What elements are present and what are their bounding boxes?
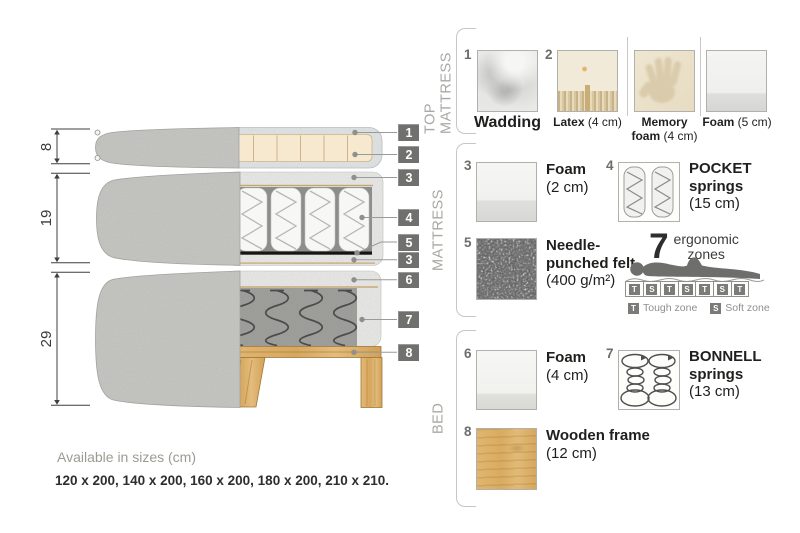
memory-foam-thumbnail bbox=[634, 50, 695, 112]
zone-box: S bbox=[713, 281, 732, 297]
bonnell-springs-icon bbox=[619, 351, 679, 409]
bed-construction-infographic: 8 19 29 1 2 3 4 5 3 6 7 8 TOP MATTRESS 1… bbox=[0, 0, 800, 533]
tough-zone-key: T Tough zone bbox=[628, 302, 697, 314]
felt-texture bbox=[477, 239, 536, 299]
latex-thumbnail bbox=[557, 50, 618, 112]
divider bbox=[700, 37, 701, 116]
callout-8: 8 bbox=[398, 344, 419, 361]
legend-num-5: 5 bbox=[464, 235, 472, 250]
pocket-springs-thumbnail bbox=[618, 162, 680, 222]
section-title-bed: BED bbox=[430, 330, 447, 507]
pocket-springs-icon bbox=[619, 163, 679, 221]
section-title-mattress: MATTRESS bbox=[430, 143, 447, 317]
legend-num-4: 4 bbox=[606, 158, 614, 173]
foam4-thumbnail bbox=[476, 350, 537, 410]
wood-caption: Wooden frame(12 cm) bbox=[546, 427, 716, 462]
legend-num-1: 1 bbox=[464, 47, 472, 62]
bonnell-springs-thumbnail bbox=[618, 350, 680, 410]
zone-box: S bbox=[678, 281, 697, 297]
foam2-thumbnail bbox=[476, 162, 537, 222]
callout-4: 4 bbox=[398, 209, 419, 226]
foam5-caption: Foam (5 cm) bbox=[697, 116, 777, 130]
legend-num-2: 2 bbox=[545, 47, 553, 62]
dimension-top-mattress: 8 bbox=[35, 136, 57, 158]
legend-num-7: 7 bbox=[606, 346, 614, 361]
foam5-thumbnail bbox=[706, 50, 767, 112]
sizes-heading: Available in sizes (cm) bbox=[57, 449, 196, 465]
memory-foam-caption: Memory foam (4 cm) bbox=[629, 116, 700, 144]
legend-num-6: 6 bbox=[464, 346, 472, 361]
callout-1: 1 bbox=[398, 124, 419, 141]
callout-3: 3 bbox=[398, 169, 419, 186]
zone-box: T bbox=[731, 281, 750, 297]
zone-box: S bbox=[643, 281, 662, 297]
bonnell-springs-caption: BONNELL springs(13 cm) bbox=[689, 348, 784, 401]
callout-3b: 3 bbox=[398, 252, 419, 269]
dimension-mattress: 19 bbox=[35, 207, 57, 229]
divider bbox=[627, 37, 628, 116]
sleeping-person-icon bbox=[626, 255, 764, 283]
callout-6: 6 bbox=[398, 272, 419, 289]
legend-num-3: 3 bbox=[464, 158, 472, 173]
legend-num-8: 8 bbox=[464, 424, 472, 439]
zone-box: T bbox=[660, 281, 679, 297]
latex-caption: Latex (4 cm) bbox=[546, 116, 629, 130]
sizes-list: 120 x 200, 140 x 200, 160 x 200, 180 x 2… bbox=[55, 473, 389, 488]
wadding-caption: Wadding bbox=[459, 114, 556, 132]
felt-thumbnail bbox=[476, 238, 537, 300]
wood-thumbnail bbox=[476, 428, 537, 490]
section-title-top-mattress: TOP MATTRESS bbox=[430, 28, 447, 134]
callout-7: 7 bbox=[398, 311, 419, 328]
soft-zone-key: S Soft zone bbox=[710, 302, 769, 314]
zone-box: T bbox=[695, 281, 714, 297]
pocket-springs-caption: POCKET springs(15 cm) bbox=[689, 160, 774, 213]
zone-box: T bbox=[625, 281, 644, 297]
dimension-bed: 29 bbox=[35, 328, 57, 350]
zone-pattern-row: T S T S T S T bbox=[626, 281, 749, 297]
zone-key-legend: T Tough zone S Soft zone bbox=[628, 302, 770, 314]
callout-2: 2 bbox=[398, 146, 419, 163]
hand-imprint-icon bbox=[635, 51, 694, 111]
callout-5: 5 bbox=[398, 234, 419, 251]
wadding-thumbnail bbox=[477, 50, 538, 112]
